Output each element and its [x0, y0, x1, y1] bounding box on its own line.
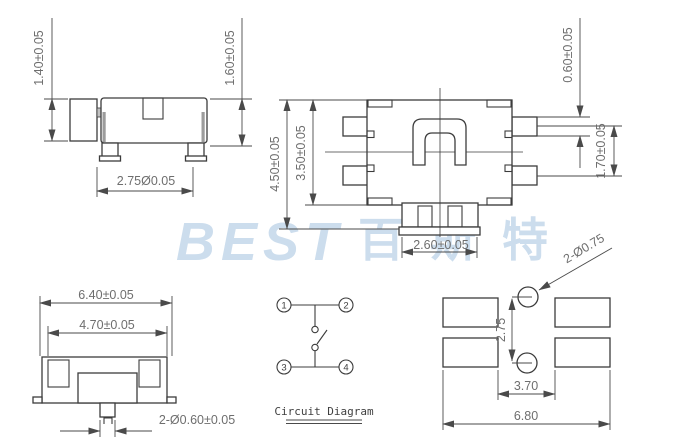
top-pad-right-2 — [512, 166, 537, 185]
front-actuator — [78, 373, 137, 403]
dim-leg-span-label: 2.75Ø0.05 — [117, 174, 175, 188]
dim-body-depth: 3.50±0.05 — [294, 100, 367, 205]
drawing-canvas: 1.40±0.05 1.60±0.05 2.75Ø0.05 — [0, 0, 685, 443]
top-view: 4.50±0.05 3.50±0.05 0.60±0.05 1.70±0.05 — [268, 18, 622, 258]
dim-body-width-label: 4.70±0.05 — [79, 318, 135, 332]
front-foot-right — [167, 397, 176, 403]
circuit-diagram: 1 2 3 4 Circuit Diagram — [274, 298, 374, 424]
pcb-land-pattern: 2.75 2-Ø0.75 3.70 6.80 — [443, 231, 612, 430]
dim-pad-gap-label: 3.70 — [514, 379, 538, 393]
dim-actuator-height: 1.40±0.05 — [32, 18, 68, 141]
pin-label-3: 3 — [281, 363, 286, 374]
dim-pcb-overall-label: 6.80 — [514, 409, 538, 423]
front-pin-marks — [104, 418, 112, 424]
switch-lever — [317, 330, 327, 344]
pin-label-2: 2 — [343, 301, 348, 312]
side-body — [101, 98, 207, 143]
top-actuator-flange — [399, 227, 480, 235]
side-contact-left — [103, 112, 106, 142]
dim-hole-dia-label: 2-Ø0.75 — [561, 231, 607, 266]
side-view: 1.40±0.05 1.60±0.05 2.75Ø0.05 — [32, 18, 252, 197]
switch-contact-upper — [312, 326, 318, 332]
top-pad-right-1 — [512, 117, 537, 136]
top-body — [367, 100, 512, 205]
circuit-caption: Circuit Diagram — [274, 405, 374, 418]
front-foot-left — [33, 397, 42, 403]
dim-pad-gap: 3.70 — [498, 370, 555, 400]
pin-label-4: 4 — [343, 363, 348, 374]
dim-pad-width-label: 0.60±0.05 — [561, 27, 575, 83]
dim-hole-pitch-label: 2.75 — [494, 318, 508, 342]
dim-overall-width-label: 6.40±0.05 — [78, 288, 134, 302]
dim-actuator-width-label: 2.60±0.05 — [413, 238, 469, 252]
pcb-pad-tr — [555, 298, 610, 327]
dim-actuator-width: 2.60±0.05 — [402, 237, 477, 258]
dim-pad-pitch: 1.70±0.05 — [537, 123, 622, 179]
dim-pin-dia: 2-Ø0.60±0.05 — [60, 413, 235, 437]
top-pad-left-2 — [343, 166, 368, 185]
top-pad-left-1 — [343, 117, 368, 136]
dim-overall-depth-label: 4.50±0.05 — [268, 136, 282, 192]
pcb-pad-tl — [443, 298, 498, 327]
pcb-pad-bl — [443, 338, 498, 367]
dim-body-depth-label: 3.50±0.05 — [294, 125, 308, 181]
dim-pin-dia-label: 2-Ø0.60±0.05 — [159, 413, 235, 427]
dim-pad-pitch-label: 1.70±0.05 — [594, 123, 608, 179]
dim-body-height: 1.60±0.05 — [210, 18, 252, 146]
drawing-sheet: BEST百斯特 — [0, 0, 685, 443]
pin-label-1: 1 — [281, 301, 286, 312]
dim-body-width: 4.70±0.05 — [48, 318, 167, 356]
dim-actuator-height-label: 1.40±0.05 — [32, 30, 46, 86]
side-leg-right-foot — [186, 156, 207, 161]
side-actuator — [70, 99, 97, 141]
side-leg-left-foot — [100, 156, 121, 161]
front-stem — [100, 403, 115, 417]
pcb-pad-br — [555, 338, 610, 367]
side-contact-right — [202, 112, 205, 142]
dim-body-height-label: 1.60±0.05 — [223, 30, 237, 86]
dim-pad-width: 0.60±0.05 — [537, 18, 590, 168]
front-view: 6.40±0.05 4.70±0.05 2-Ø0.60±0.05 — [33, 288, 235, 437]
switch-contact-lower — [312, 344, 318, 350]
dim-leg-span: 2.75Ø0.05 — [97, 167, 193, 197]
dim-hole-dia: 2-Ø0.75 — [539, 231, 612, 290]
